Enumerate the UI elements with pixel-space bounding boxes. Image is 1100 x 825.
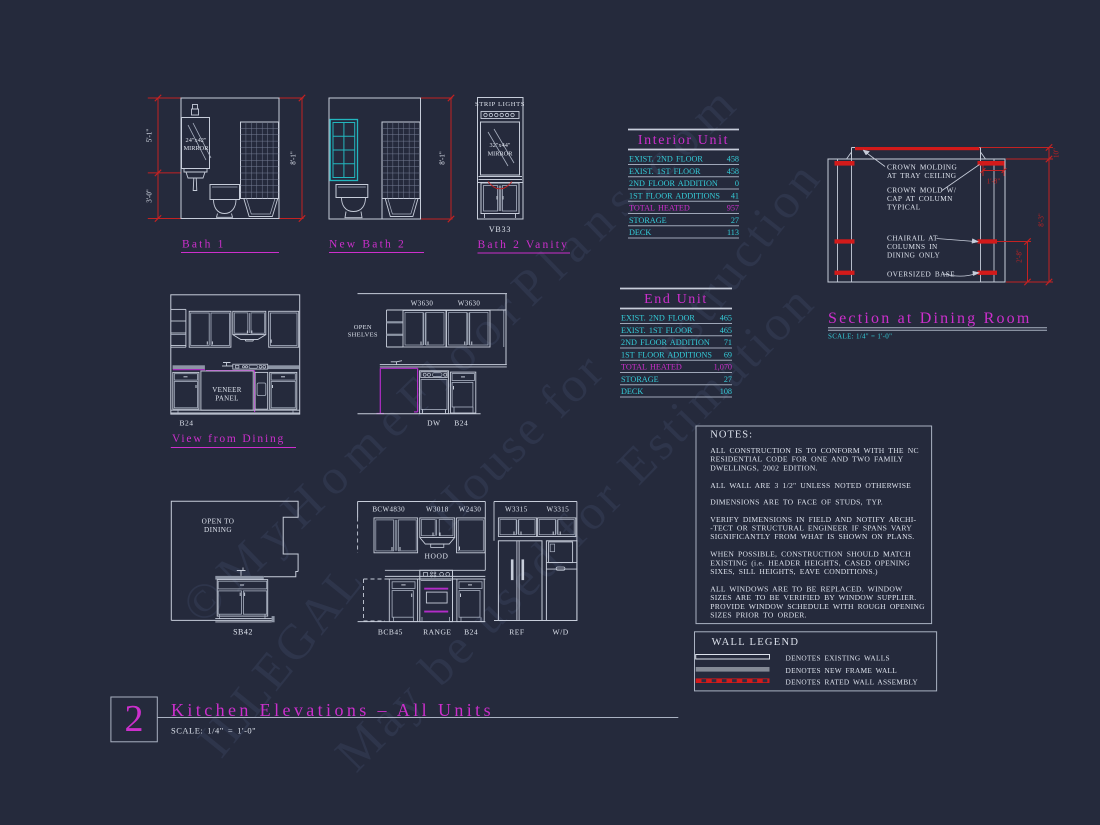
svg-text:WHEN POSSIBLE, CONSTRUCTION SH: WHEN POSSIBLE, CONSTRUCTION SHOULD MATCH <box>710 550 911 559</box>
svg-text:DECK: DECK <box>621 387 643 396</box>
svg-text:B24: B24 <box>179 419 193 428</box>
svg-text:DWELLINGS, 2002 EDITION.: DWELLINGS, 2002 EDITION. <box>710 463 817 472</box>
svg-text:RESIDENTIAL CODE FOR ONE AND T: RESIDENTIAL CODE FOR ONE AND TWO FAMILY <box>710 455 903 464</box>
svg-text:SCALE: 1/4" = 1'-0": SCALE: 1/4" = 1'-0" <box>171 726 256 736</box>
svg-text:TOTAL HEATED: TOTAL HEATED <box>621 363 682 372</box>
svg-text:WALL LEGEND: WALL LEGEND <box>712 637 800 648</box>
svg-text:465: 465 <box>720 326 732 335</box>
svg-text:0: 0 <box>735 179 739 188</box>
svg-text:BCB45: BCB45 <box>378 628 403 637</box>
svg-text:Interior Unit: Interior Unit <box>638 133 729 148</box>
svg-text:VB33: VB33 <box>489 225 511 234</box>
svg-text:32"x44": 32"x44" <box>490 142 511 149</box>
svg-text:New Bath 2: New Bath 2 <box>329 239 406 251</box>
svg-text:10": 10" <box>1053 148 1061 158</box>
svg-text:STRIP LIGHTS: STRIP LIGHTS <box>475 101 525 108</box>
svg-text:SIGNIFICANTLY FROM WHAT IS SHO: SIGNIFICANTLY FROM WHAT IS SHOWN ON PLAN… <box>710 532 914 541</box>
svg-text:SIXES, SILL HEIGHTS, EAVE COND: SIXES, SILL HEIGHTS, EAVE CONDITIONS.) <box>710 567 878 576</box>
svg-text:W3315: W3315 <box>505 506 528 514</box>
svg-text:3'-0": 3'-0" <box>146 189 154 203</box>
svg-text:SHELVES: SHELVES <box>348 332 378 339</box>
svg-text:465: 465 <box>720 314 732 323</box>
svg-text:71: 71 <box>724 338 732 347</box>
svg-text:W3630: W3630 <box>458 300 481 308</box>
svg-text:SIZES PRIOR TO ORDER.: SIZES PRIOR TO ORDER. <box>710 610 806 619</box>
svg-text:1,070: 1,070 <box>714 363 732 372</box>
svg-text:ALL CONSTRUCTION IS TO CONFORM: ALL CONSTRUCTION IS TO CONFORM WITH THE … <box>710 446 919 455</box>
svg-text:DENOTES EXISTING WALLS: DENOTES EXISTING WALLS <box>786 654 890 663</box>
svg-text:TYPICAL: TYPICAL <box>887 203 921 212</box>
svg-text:View from Dining: View from Dining <box>172 433 285 445</box>
svg-text:EXIST. 1ST FLOOR: EXIST. 1ST FLOOR <box>629 167 701 176</box>
svg-text:EXIST. 2ND FLOOR: EXIST. 2ND FLOOR <box>621 314 695 323</box>
svg-text:108: 108 <box>720 387 732 396</box>
svg-text:W3630: W3630 <box>411 300 434 308</box>
svg-text:EXIST. 2ND FLOOR: EXIST. 2ND FLOOR <box>629 155 703 164</box>
svg-text:OPEN TO: OPEN TO <box>202 518 235 526</box>
svg-text:2ND FLOOR ADDITION: 2ND FLOOR ADDITION <box>629 179 718 188</box>
svg-text:W3018: W3018 <box>426 506 449 514</box>
svg-text:RANGE: RANGE <box>423 628 451 637</box>
svg-text:5'-1": 5'-1" <box>146 129 154 143</box>
svg-text:OPEN: OPEN <box>354 324 372 331</box>
svg-text:EXISTING (i.e. HEADER HEIGHTS,: EXISTING (i.e. HEADER HEIGHTS, CASED OPE… <box>710 558 910 567</box>
svg-text:957: 957 <box>727 204 739 213</box>
svg-text:1'-8": 1'-8" <box>987 178 1001 186</box>
svg-text:1ST FLOOR ADDITIONS: 1ST FLOOR ADDITIONS <box>629 191 720 200</box>
svg-text:DINING ONLY: DINING ONLY <box>887 251 941 260</box>
svg-text:69: 69 <box>724 350 732 359</box>
svg-text:EXIST. 1ST FLOOR: EXIST. 1ST FLOOR <box>621 326 693 335</box>
svg-text:ALL WINDOWS ARE TO BE REPLACED: ALL WINDOWS ARE TO BE REPLACED. WINDOW <box>710 585 903 594</box>
svg-text:2ND FLOOR ADDITION: 2ND FLOOR ADDITION <box>621 338 710 347</box>
svg-text:End Unit: End Unit <box>644 292 708 307</box>
svg-text:27: 27 <box>724 375 732 384</box>
svg-text:B24: B24 <box>454 419 468 428</box>
svg-text:2'-8": 2'-8" <box>1016 249 1024 263</box>
svg-text:VENEER: VENEER <box>212 386 241 394</box>
svg-text:8'-1": 8'-1" <box>439 151 447 165</box>
svg-text:Bath 2 Vanity: Bath 2 Vanity <box>478 239 570 251</box>
svg-text:2: 2 <box>125 698 144 740</box>
svg-text:NOTES:: NOTES: <box>710 430 753 441</box>
svg-text:W2430: W2430 <box>459 506 482 514</box>
svg-text:8'-1": 8'-1" <box>290 151 298 165</box>
svg-text:STORAGE: STORAGE <box>621 375 659 384</box>
svg-text:DIMENSIONS ARE TO FACE OF STUD: DIMENSIONS ARE TO FACE OF STUDS, TYP. <box>710 498 883 507</box>
svg-text:DENOTES NEW FRAME WALL: DENOTES NEW FRAME WALL <box>786 666 898 675</box>
svg-text:41: 41 <box>731 191 739 200</box>
svg-text:VERIFY DIMENSIONS IN FIELD AND: VERIFY DIMENSIONS IN FIELD AND NOTIFY AR… <box>710 515 916 524</box>
svg-text:PROVIDE WINDOW SCHEDULE WITH R: PROVIDE WINDOW SCHEDULE WITH ROUGH OPENI… <box>710 602 925 611</box>
svg-text:24"x42": 24"x42" <box>186 137 207 144</box>
svg-text:HOOD: HOOD <box>424 552 448 561</box>
svg-text:B24: B24 <box>464 628 478 637</box>
svg-text:Bath 1: Bath 1 <box>182 239 226 251</box>
svg-text:458: 458 <box>727 155 739 164</box>
svg-text:PANEL: PANEL <box>215 395 238 403</box>
svg-text:REF: REF <box>509 628 524 637</box>
svg-text:DECK: DECK <box>629 228 651 237</box>
svg-text:MIRROR: MIRROR <box>184 145 210 152</box>
svg-text:DW: DW <box>427 419 441 428</box>
svg-text:8'-3": 8'-3" <box>1038 213 1046 227</box>
svg-text:ALL WALL ARE 3 1/2" UNLESS NOT: ALL WALL ARE 3 1/2" UNLESS NOTED OTHERWI… <box>710 481 911 490</box>
svg-text:27: 27 <box>731 216 739 225</box>
svg-text:458: 458 <box>727 167 739 176</box>
svg-text:W/D: W/D <box>553 628 569 637</box>
svg-text:SIZES ARE TO BE VERIFIED BY WI: SIZES ARE TO BE VERIFIED BY WINDOW SUPPL… <box>710 593 916 602</box>
svg-text:BCW4830: BCW4830 <box>372 506 405 514</box>
svg-text:MIRROR: MIRROR <box>488 151 514 158</box>
svg-text:-TECT OR STRUCTURAL ENGINEER I: -TECT OR STRUCTURAL ENGINEER IF SPANS VA… <box>710 523 912 532</box>
svg-text:W3315: W3315 <box>546 506 569 514</box>
svg-text:1ST FLOOR ADDITIONS: 1ST FLOOR ADDITIONS <box>621 350 712 359</box>
svg-text:TOTAL HEATED: TOTAL HEATED <box>629 204 690 213</box>
svg-text:SB42: SB42 <box>233 628 253 637</box>
svg-text:AT TRAY CEILING: AT TRAY CEILING <box>887 171 957 180</box>
svg-text:SCALE: 1/4" = 1'-0": SCALE: 1/4" = 1'-0" <box>828 333 892 341</box>
svg-text:STORAGE: STORAGE <box>629 216 667 225</box>
svg-text:113: 113 <box>727 228 739 237</box>
svg-text:DENOTES RATED WALL ASSEMBLY: DENOTES RATED WALL ASSEMBLY <box>786 678 919 687</box>
svg-text:DINING: DINING <box>204 526 232 534</box>
svg-text:Section at Dining Room: Section at Dining Room <box>828 310 1032 327</box>
